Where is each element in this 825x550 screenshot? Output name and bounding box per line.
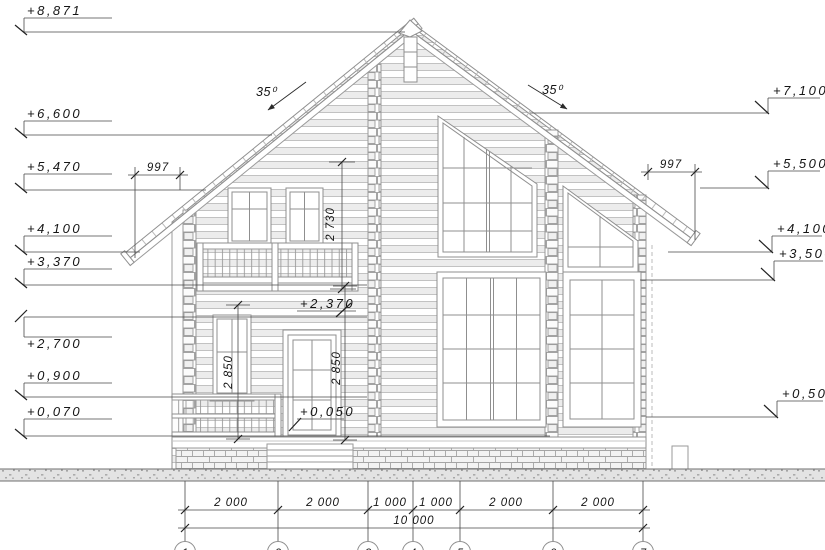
- elevation-value: +0,500: [782, 386, 825, 401]
- roof-angle-left-label: 35⁰: [256, 82, 306, 110]
- brick-plinth-right: [353, 448, 646, 469]
- elevation-value: +8,871: [27, 3, 82, 18]
- elevation-marker: +7,100: [530, 83, 825, 114]
- elevation-value: +5,500: [773, 156, 825, 171]
- porch-steps: [267, 444, 353, 469]
- balcony-railing: [197, 243, 358, 291]
- elevation-drawing: 1 2 3 4 5 6 7 2 000 2 000 1 000 1 000 2 …: [0, 0, 825, 550]
- roof-angle-right-label: 35⁰: [528, 83, 567, 109]
- elevation-value: +5,470: [27, 159, 82, 174]
- dim-value: 997: [660, 159, 682, 171]
- railing-post: [197, 243, 203, 291]
- elevation-value: +6,600: [27, 106, 82, 121]
- elevation-marker: +5,500: [700, 156, 825, 189]
- elevation-value: +4,100: [777, 221, 825, 236]
- roof-angle-value: 35⁰: [256, 85, 278, 99]
- level-value: +2,370: [300, 296, 355, 311]
- ground-hatch: [0, 469, 825, 481]
- dim-segment: 2 000: [488, 497, 523, 509]
- window-centre-double: [437, 272, 546, 427]
- level-value: +0,050: [300, 404, 355, 419]
- dim-segment: 2 000: [213, 497, 248, 509]
- elevation-value: +2,700: [27, 336, 82, 351]
- dim-segment: 1 000: [373, 497, 407, 509]
- ridge-pendant: [404, 37, 417, 82]
- railing-post: [275, 394, 281, 437]
- window-right: [563, 272, 641, 427]
- elevation-value: +3,370: [27, 254, 82, 269]
- dim-segment: 2 000: [305, 497, 340, 509]
- dim-segment: 1 000: [419, 497, 453, 509]
- balcony-window-right: [286, 188, 323, 245]
- roof-angle-value: 35⁰: [542, 83, 564, 97]
- elevation-marker: +8,871: [15, 3, 405, 35]
- elevation-value: +7,100: [773, 83, 825, 98]
- entry-door: [281, 330, 343, 444]
- dim-value: 2 730: [325, 207, 337, 242]
- axis-bubbles: 1 2 3 4 5 6 7: [175, 542, 654, 550]
- foundation: [172, 437, 688, 469]
- log-stack-2: [368, 64, 381, 448]
- elevation-value: +4,100: [27, 221, 82, 236]
- dim-total: 10 000: [393, 515, 434, 527]
- brick-plinth-left: [176, 448, 267, 469]
- railing-post: [352, 243, 358, 291]
- side-step-block: [672, 446, 688, 469]
- balcony-window-left: [228, 188, 271, 245]
- log-stack-3: [545, 130, 558, 448]
- dim-value: 2 850: [331, 351, 343, 386]
- dimension-chain-bottom: 2 000 2 000 1 000 1 000 2 000 2 000 10 0…: [178, 497, 650, 532]
- elevation-marker: +4,100: [15, 221, 140, 255]
- dim-value: 997: [147, 162, 169, 174]
- elevation-marker: +0,500: [646, 386, 825, 418]
- dim-value: 2 850: [223, 355, 235, 390]
- elevation-value: +0,070: [27, 404, 82, 419]
- elevation-marker: +3,500: [640, 246, 825, 281]
- dim-segment: 2 000: [580, 497, 615, 509]
- elevation-marker: +6,600: [15, 106, 272, 138]
- elevation-marker: +5,470: [15, 159, 206, 193]
- elevation-value: +3,500: [779, 246, 825, 261]
- porch-railing: [172, 394, 281, 437]
- railing-post: [272, 243, 278, 291]
- elevation-sheet: 1 2 3 4 5 6 7 2 000 2 000 1 000 1 000 2 …: [0, 0, 825, 550]
- elevation-value: +0,900: [27, 368, 82, 383]
